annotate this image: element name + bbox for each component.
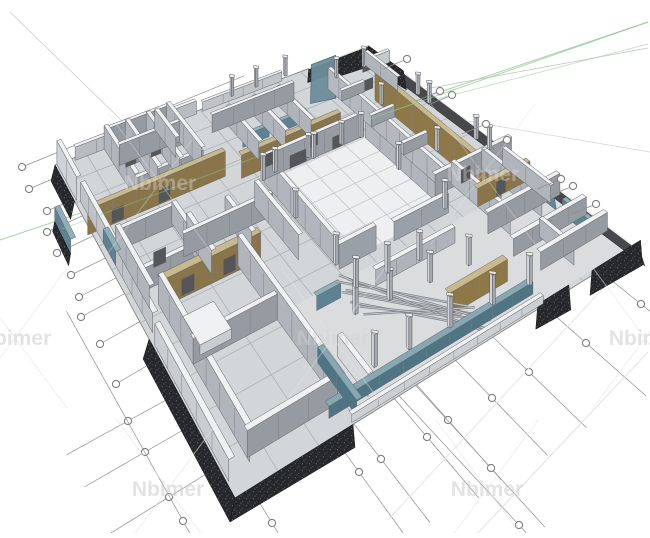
svg-text:Nbimer: Nbimer	[297, 327, 369, 350]
svg-text:Nbimer: Nbimer	[124, 172, 196, 195]
svg-text:Nbimer: Nbimer	[132, 478, 204, 501]
svg-text:Nbimer: Nbimer	[451, 478, 523, 501]
svg-text:Nbimer: Nbimer	[0, 327, 51, 350]
svg-text:Nbimer: Nbimer	[447, 163, 519, 186]
svg-text:Nbimer: Nbimer	[609, 327, 650, 350]
